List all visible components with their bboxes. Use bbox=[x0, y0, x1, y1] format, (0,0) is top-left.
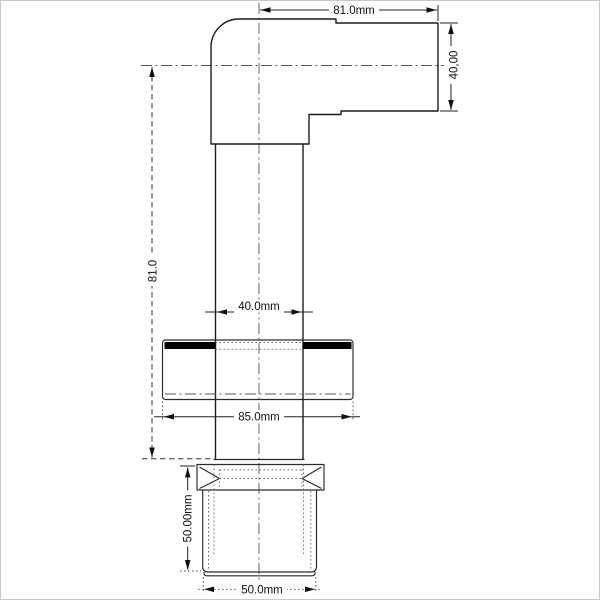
arrowhead-top bbox=[149, 67, 155, 77]
arrowhead-right bbox=[342, 414, 352, 420]
arrowhead-bottom bbox=[185, 560, 191, 570]
arrowhead-left bbox=[261, 7, 271, 13]
arrowhead-bottom bbox=[149, 448, 155, 458]
arrowhead-top bbox=[448, 24, 454, 34]
arrowhead-right bbox=[292, 309, 302, 315]
flange-seal-left bbox=[165, 342, 216, 349]
dimension-socket-height: 50.00mm bbox=[180, 466, 201, 571]
drawing-canvas: 81.0mm 40,00 81.0 40.0mm bbox=[1, 1, 599, 599]
elbow-outline bbox=[211, 19, 438, 144]
arrowhead-left bbox=[164, 414, 174, 420]
dimension-socket-diameter: 50.0mm bbox=[198, 577, 321, 596]
collar-chamfer-bottom-right bbox=[302, 479, 322, 489]
dimension-outlet-diameter: 40,00 bbox=[440, 23, 461, 111]
collar-chamfer-top-right bbox=[302, 467, 322, 479]
dimension-label-body-height: 81.0 bbox=[148, 260, 160, 282]
socket-body bbox=[203, 465, 317, 576]
collar-chamfer-bottom-left bbox=[200, 479, 220, 489]
collar-chamfer-top-left bbox=[200, 467, 220, 479]
arrowhead-right bbox=[305, 587, 315, 593]
arrowhead-top bbox=[185, 468, 191, 478]
dimension-label-socket-height: 50.00mm bbox=[183, 495, 195, 543]
arrowhead-right bbox=[427, 7, 437, 13]
dimension-label-pipe-diameter: 40.0mm bbox=[238, 301, 280, 313]
dimension-label-outlet-diameter: 40,00 bbox=[449, 51, 461, 80]
flange bbox=[163, 340, 354, 400]
arrowhead-bottom bbox=[448, 100, 454, 110]
dimension-label-socket-diameter: 50.0mm bbox=[241, 584, 283, 596]
dimension-label-flange-width: 85.0mm bbox=[238, 412, 280, 424]
rotated-label-group: 81.0 bbox=[146, 256, 160, 286]
arrowhead-left bbox=[204, 587, 214, 593]
elbow-body bbox=[211, 19, 438, 144]
technical-drawing-page: 81.0mm 40,00 81.0 40.0mm bbox=[0, 0, 600, 600]
rotated-label-group: 40,00 bbox=[447, 46, 461, 84]
socket-collar bbox=[197, 465, 324, 491]
rotated-label-group: 50.00mm bbox=[181, 491, 195, 547]
dimension-pipe-diameter: 40.0mm bbox=[205, 300, 313, 315]
dimension-label-top-width: 81.0mm bbox=[333, 5, 375, 17]
flange-seal-right bbox=[303, 342, 352, 349]
dimension-flange-width: 85.0mm bbox=[154, 402, 360, 424]
socket-outline bbox=[203, 490, 317, 572]
arrowhead-left bbox=[217, 309, 227, 315]
